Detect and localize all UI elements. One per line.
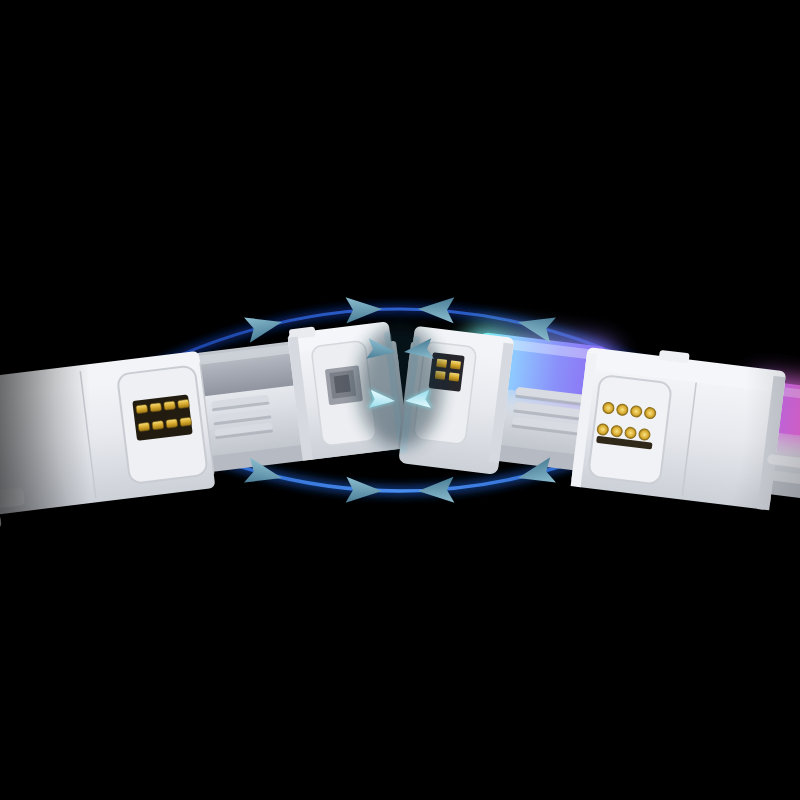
scene xyxy=(0,0,800,800)
vignette xyxy=(0,0,800,800)
product-render xyxy=(0,0,800,800)
